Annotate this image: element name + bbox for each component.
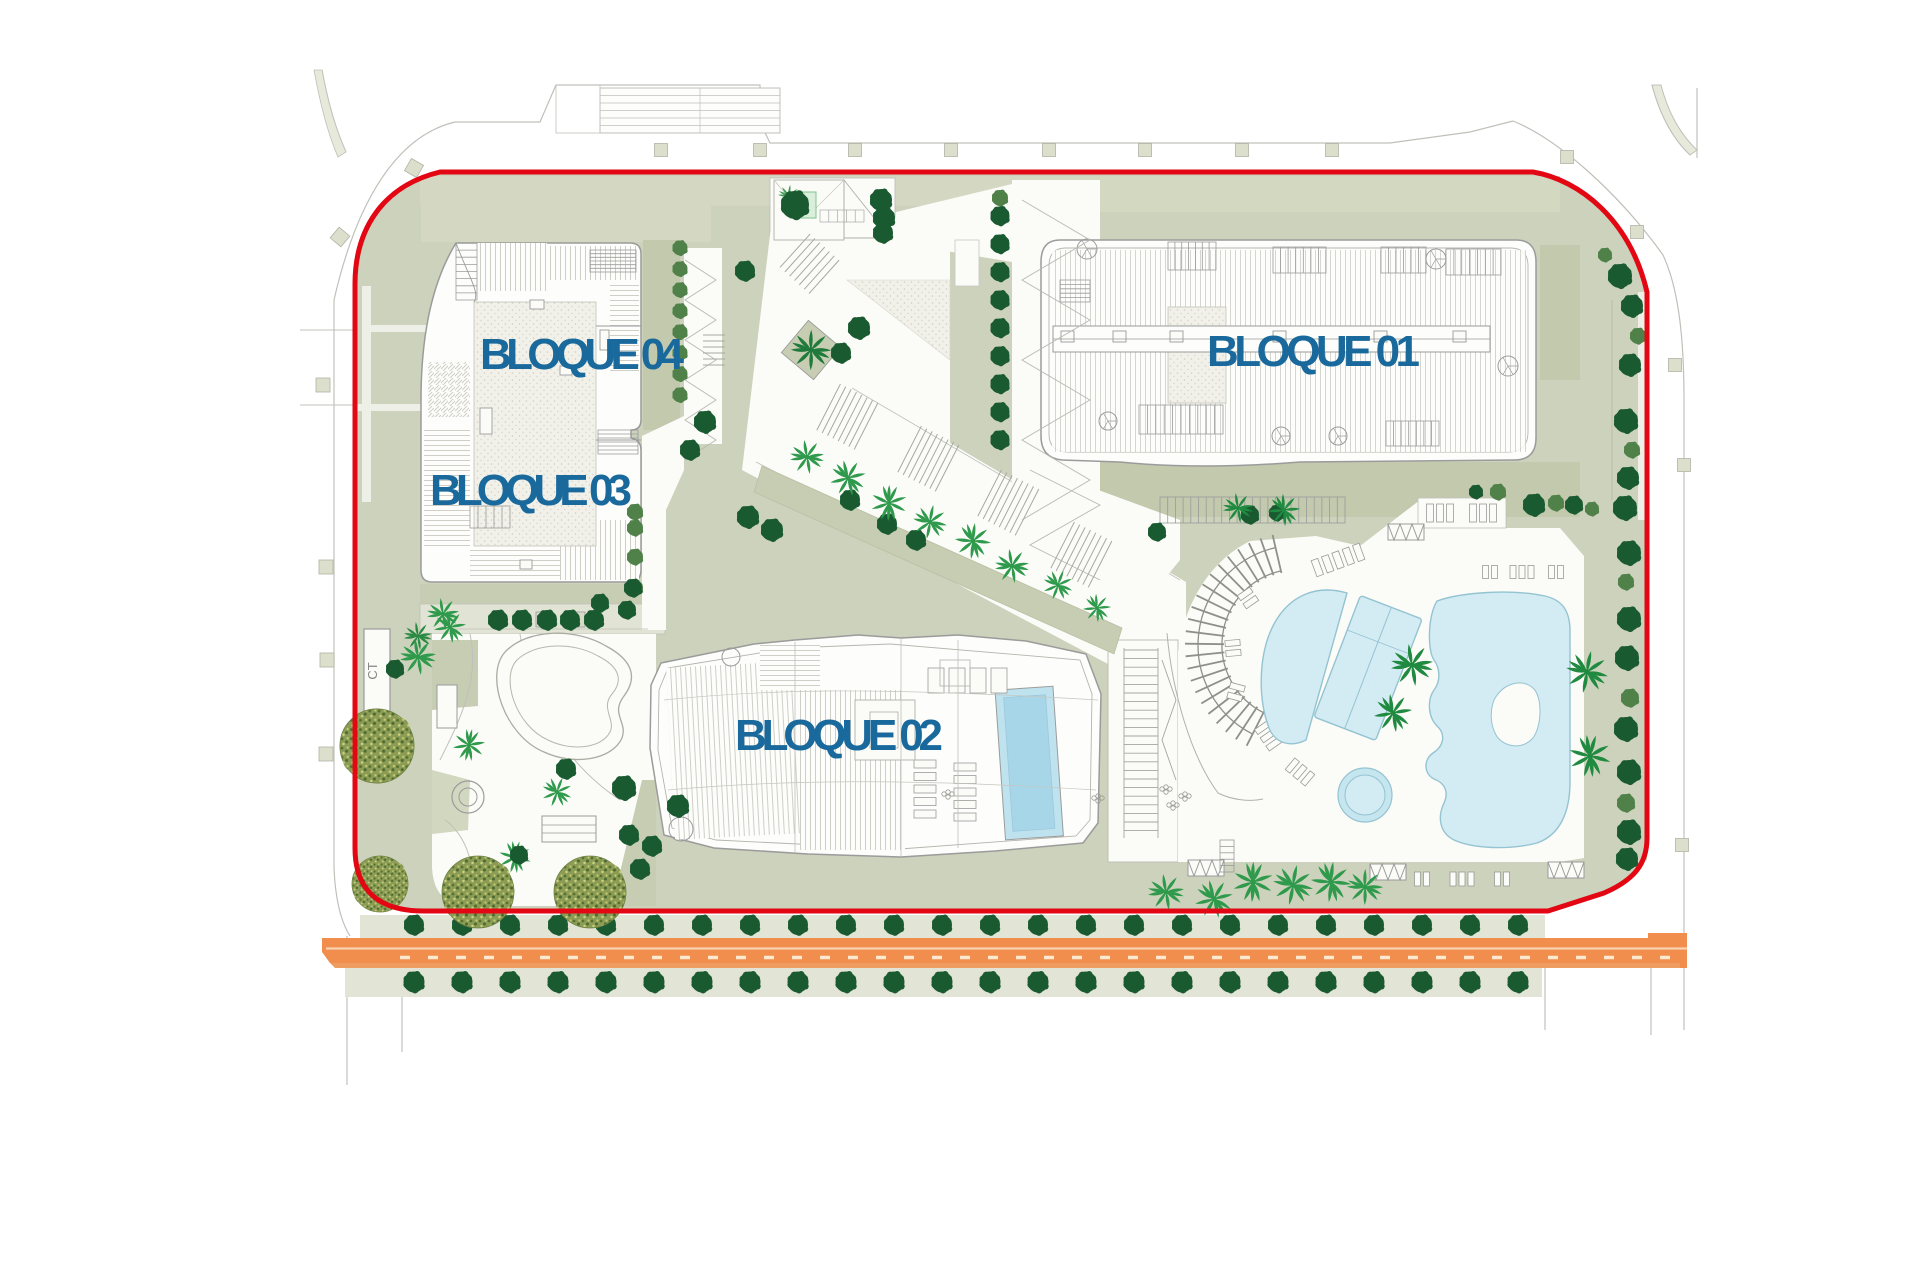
svg-text:BLOQUE 03: BLOQUE 03 — [430, 466, 632, 515]
svg-text:CT: CT — [365, 662, 380, 679]
svg-text:BLOQUE 01: BLOQUE 01 — [1207, 327, 1420, 376]
svg-text:BLOQUE 04: BLOQUE 04 — [480, 330, 685, 379]
svg-text:BLOQUE 02: BLOQUE 02 — [735, 711, 943, 760]
